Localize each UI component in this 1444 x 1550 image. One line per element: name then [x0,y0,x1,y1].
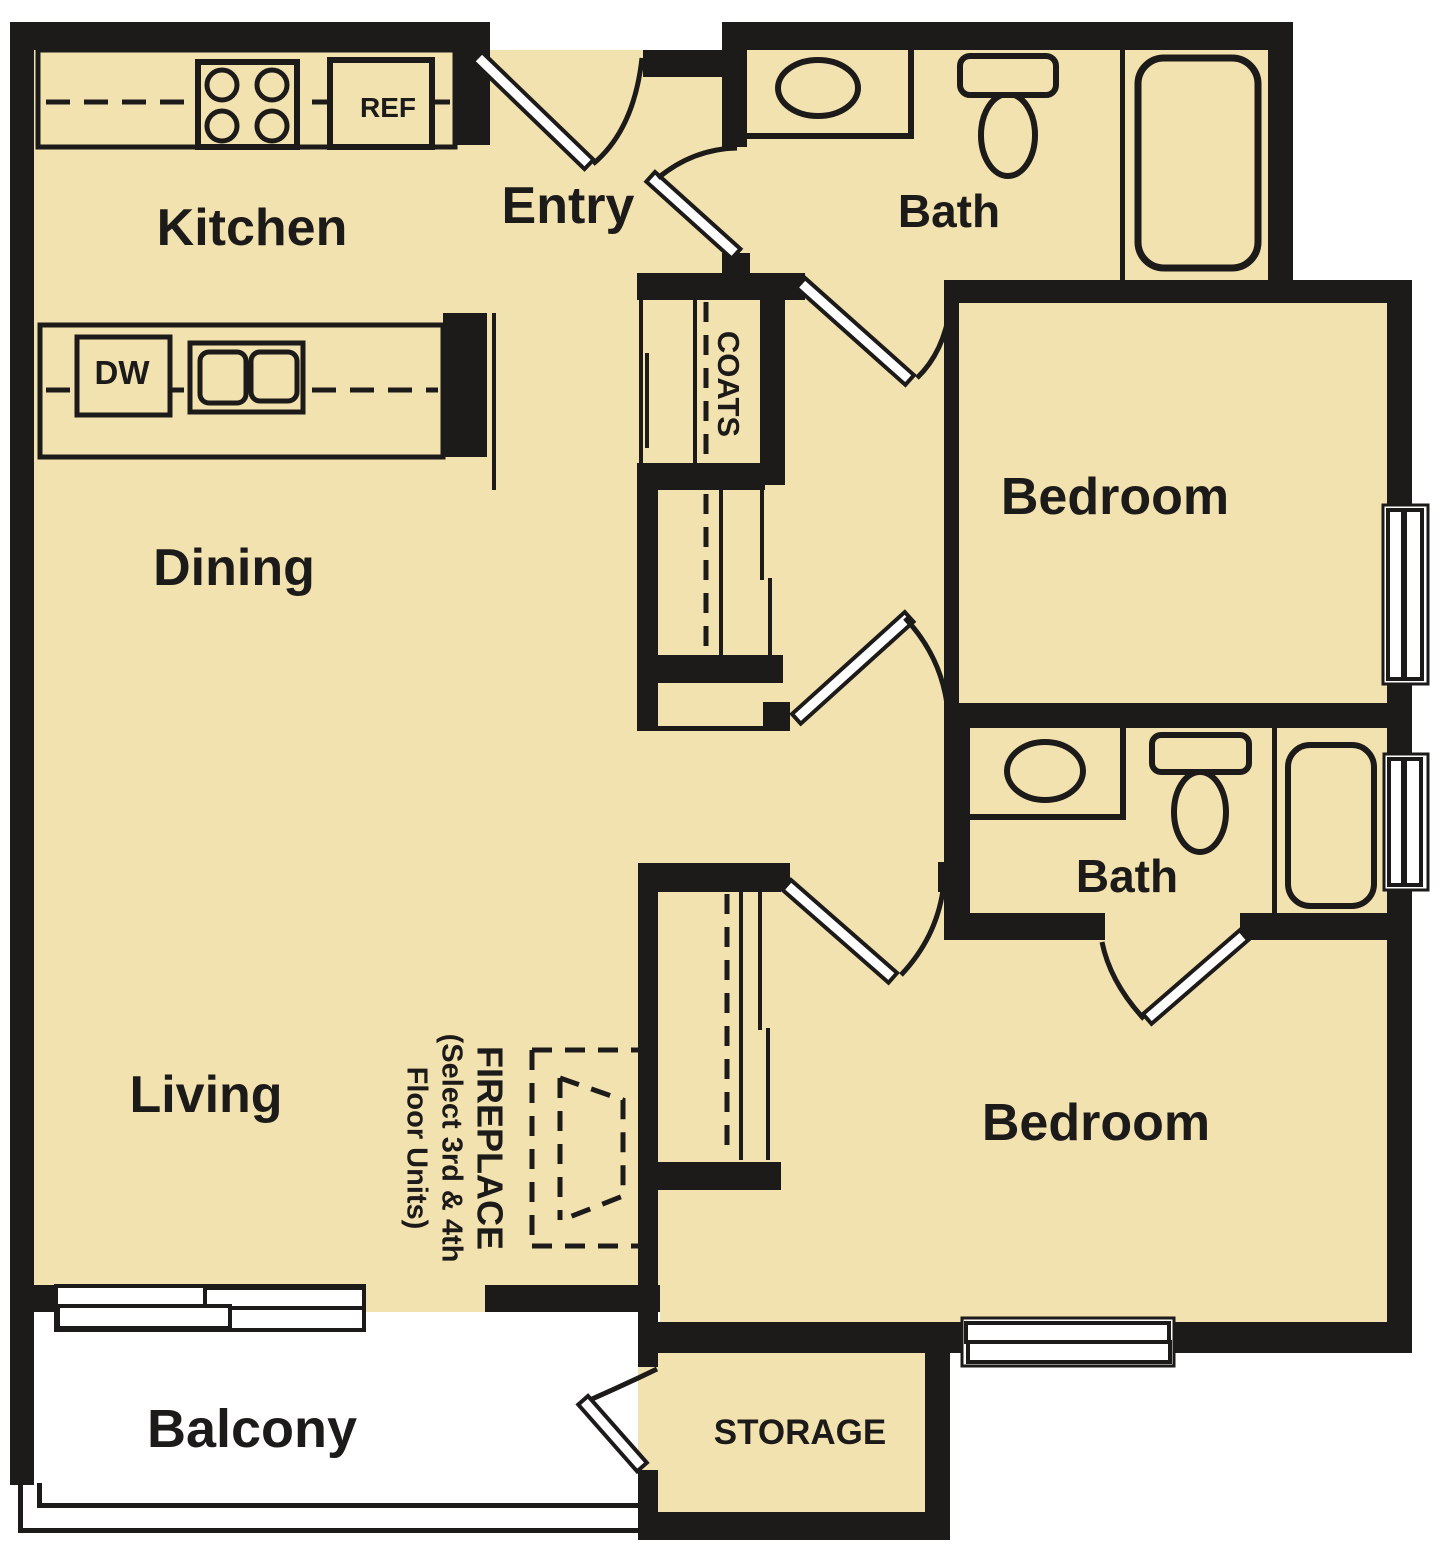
bath1-counter-edge-bottom [740,133,914,139]
railing-bottom-inner [37,1503,638,1508]
label-refrigerator: REF [360,92,416,124]
closet2-top-line [658,888,781,892]
linen-door-line [719,490,723,655]
label-bath-1: Bath [898,184,1000,238]
wall-top-bath1 [722,22,1293,50]
coats-left-line [639,300,643,463]
label-dishwasher: DW [95,354,150,392]
railing-left-outer [18,1483,23,1533]
bedroom1-window [1383,505,1428,684]
wall-living-bottom-right [485,1285,660,1312]
bath2-counter-edge-right [1120,728,1126,820]
wall-storage-bottom [638,1512,950,1540]
bath2-divider-line [1272,728,1277,916]
label-bedroom-1: Bedroom [1001,467,1229,527]
linen-right-line-a [760,485,764,580]
wall-bath2-jamb [938,862,950,892]
bath1-counter-edge-right [908,44,914,139]
closet2-door-line [739,892,743,1160]
wall-bedroom1-right-upper [1387,280,1412,507]
fireplace-note-line3: Floor Units) [400,1034,434,1263]
label-dining: Dining [153,538,315,598]
wall-closet2-top [638,863,790,888]
sliding-panel-moving [58,1306,230,1328]
label-coats-closet: COATS [710,331,746,437]
closet2-right-line-b [766,1028,770,1160]
wall-storage-right [925,1323,950,1540]
bath2-window [1384,754,1428,890]
wall-bath2-bottom-right [1240,913,1412,940]
label-fireplace-note: FIREPLACE (Select 3rd & 4th Floor Units) [400,1034,511,1263]
wall-entry-stub [643,50,723,77]
wall-coats-right [760,298,785,485]
wall-bedroom1-left [944,303,959,728]
label-balcony: Balcony [147,1398,357,1460]
wall-linen-left [637,485,658,731]
linen-top-line [658,485,765,490]
label-living: Living [129,1065,282,1125]
wall-entry-left [455,22,490,145]
wall-coats-top [637,273,805,300]
bedroom2-window [962,1318,1174,1366]
coats-shelf-line [645,353,649,448]
label-bath-2: Bath [1076,849,1178,903]
bath2-counter-edge-bottom [970,814,1126,820]
wall-bath2-bottom-left [950,913,1105,940]
wall-closet2-bottom [658,1162,781,1190]
wall-bath1-left [722,22,747,147]
bath1-divider-line [1120,47,1125,280]
wall-top-left [10,22,470,50]
label-bedroom-2: Bedroom [982,1093,1210,1153]
wall-linen-bottom [637,655,783,683]
bath1-toilet-bowl-icon [981,94,1035,176]
wall-island-stub [443,313,487,457]
wall-door-jamb-block [763,702,790,731]
bath2-toilet-bowl-icon [1174,772,1226,852]
wall-bath1-bedroom1 [944,280,1412,303]
wall-bath1-right [1268,22,1293,303]
railing-bottom-outer [18,1528,638,1533]
wall-bath2-left [944,703,970,940]
wall-living-bedroom2 [638,863,658,1285]
fireplace-title: FIREPLACE [468,1034,510,1263]
floor-plan: Kitchen Entry Bath Bedroom Dining COATS … [0,0,1444,1550]
balcony-sliding-door [56,1286,364,1330]
label-storage: STORAGE [714,1413,886,1453]
bath1-toilet-tank-icon [960,56,1056,95]
wall-coats-bottom [637,463,785,485]
wall-left [10,22,34,1485]
entry-dining-divider-line [492,313,496,490]
fireplace-note-line2: (Select 3rd & 4th [434,1034,468,1263]
wall-nook-edge [637,726,763,731]
linen-right-line-b [768,578,772,657]
balcony-railing [18,1483,638,1533]
bath2-toilet-tank-icon [1152,735,1249,772]
label-entry: Entry [502,176,635,236]
closet2-right-line-a [758,892,762,1030]
label-kitchen: Kitchen [157,198,348,258]
wall-bedroom1-bottom [944,703,1412,728]
coats-inner-line [693,298,697,465]
